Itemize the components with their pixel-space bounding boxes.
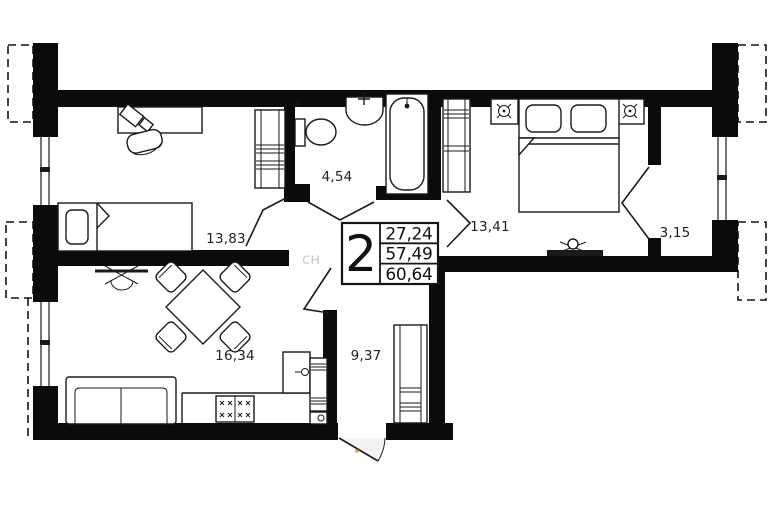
wardrobe-hallway	[394, 325, 427, 423]
door-bathroom	[308, 202, 374, 220]
double-bed	[519, 99, 619, 212]
pillow	[571, 105, 606, 132]
kitchen-living-room	[66, 260, 327, 424]
tv-stand	[547, 239, 603, 256]
ceiling-fan	[95, 266, 148, 290]
door-room	[246, 197, 288, 246]
room-label-bedroom: 13,41	[470, 219, 510, 235]
window-room-left	[40, 137, 50, 205]
nightstand-right	[617, 99, 644, 124]
room-label-office: 13,83	[206, 231, 246, 247]
watermark-text: сн	[302, 250, 320, 268]
wardrobe-bedroom	[443, 99, 470, 192]
entry-door-handle	[355, 449, 359, 453]
bathtub	[386, 94, 428, 194]
total-area-value: 60,64	[385, 265, 432, 285]
chair	[154, 320, 188, 354]
room-label-kitchen-living: 16,34	[215, 348, 255, 364]
hallway	[394, 325, 427, 423]
stove	[216, 396, 254, 422]
apartment-area-value: 57,49	[385, 245, 432, 265]
room-label-balcony: 3,15	[660, 225, 691, 241]
dashed-outline-top-right	[738, 45, 766, 122]
wardrobe-office	[255, 110, 285, 188]
dashed-outline-top-left	[8, 45, 33, 122]
entry-door	[339, 438, 385, 461]
fridge	[310, 358, 327, 411]
floor-plan-page: сн 2 27,24 57,49 60,64 13,83 4,54 13,41 …	[0, 0, 770, 510]
door-living-room	[304, 268, 331, 313]
rooms-count: 2	[345, 225, 377, 283]
dashed-outline-mid-left	[6, 222, 33, 438]
kitchen-sink-cabinet	[283, 352, 310, 393]
apartment-info-box: 2 27,24 57,49 60,64	[342, 223, 438, 285]
dashed-outline-bottom-right	[738, 222, 766, 300]
single-bed	[58, 203, 192, 251]
pillow	[526, 105, 561, 132]
toilet	[295, 119, 336, 146]
sofa	[66, 377, 176, 424]
door-balcony	[622, 167, 649, 239]
room-label-hallway: 9,37	[351, 348, 382, 364]
window-balcony-right	[717, 137, 727, 220]
living-area-value: 27,24	[385, 225, 432, 245]
window-living-left	[40, 302, 50, 386]
door-bedroom	[447, 200, 470, 247]
sink	[346, 93, 383, 125]
room-label-bathroom: 4,54	[322, 169, 353, 185]
nightstand-left	[491, 99, 518, 124]
boiler	[310, 412, 327, 424]
dining-table	[154, 260, 252, 354]
floor-plan: сн 2 27,24 57,49 60,64 13,83 4,54 13,41 …	[0, 0, 770, 510]
room-office	[58, 104, 285, 251]
bathroom	[295, 93, 428, 194]
pillow	[66, 210, 88, 244]
